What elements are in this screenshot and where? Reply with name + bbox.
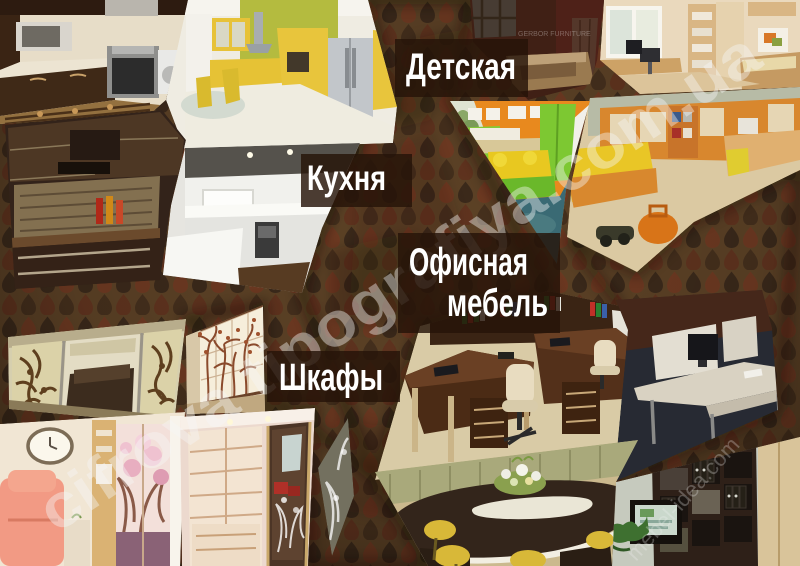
svg-text:Детская: Детская bbox=[406, 46, 516, 87]
svg-text:Кухня: Кухня bbox=[307, 159, 386, 198]
svg-text:Офисная: Офисная bbox=[409, 241, 528, 284]
svg-text:Шкафы: Шкафы bbox=[279, 357, 383, 399]
svg-text:мебель: мебель bbox=[447, 282, 548, 325]
svg-text:GERBOR FURNITURE: GERBOR FURNITURE bbox=[518, 31, 591, 38]
